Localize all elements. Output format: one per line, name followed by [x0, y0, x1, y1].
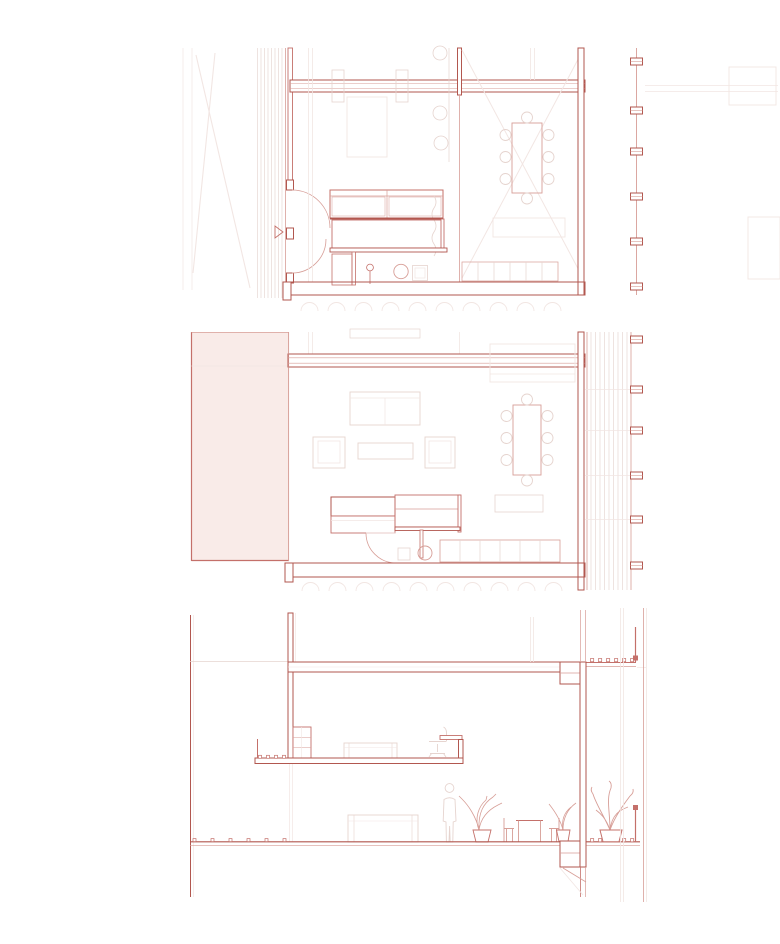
garden-paving-hatch	[88, 615, 176, 900]
site-boundary-line	[190, 615, 288, 897]
upper-furniture-faint	[332, 46, 449, 162]
panel-lower-floor-plan	[88, 329, 643, 591]
partition-wall	[458, 48, 462, 282]
joist-row	[296, 672, 583, 684]
void-pink-area	[192, 332, 290, 561]
staircase-main	[330, 219, 444, 253]
bottom-wall-strip	[283, 282, 585, 311]
garden-edge-strip	[183, 48, 192, 290]
exterior-wall-right	[578, 48, 584, 295]
bottom-wall-strip	[285, 563, 585, 591]
sofa-elevation	[344, 743, 397, 758]
sofa	[350, 392, 420, 425]
balcony-upper-right	[586, 627, 646, 668]
stair-small	[332, 254, 352, 285]
door-swing-arc	[366, 533, 396, 563]
garden-strip-bottom	[191, 561, 290, 576]
office-chair	[429, 727, 447, 757]
door-swing-arc	[292, 190, 330, 228]
staircase-main	[395, 495, 461, 532]
sofa-elevation	[348, 815, 418, 842]
facade-lines-right	[621, 608, 647, 902]
joist-row	[296, 764, 460, 772]
garden-edge-strip	[178, 332, 191, 590]
door-swing-arc	[292, 239, 326, 273]
coffee-table	[358, 443, 413, 459]
ramp-lines	[193, 53, 250, 288]
kitchen-counter	[440, 540, 560, 562]
grid-lines	[309, 332, 460, 354]
corrugated-edge	[302, 583, 562, 592]
bathroom-core	[330, 248, 447, 285]
tv-bench	[495, 495, 543, 512]
upper-room-furniture	[293, 727, 463, 759]
deck-board-band	[585, 332, 633, 590]
neighbor-unit-faint	[729, 67, 780, 279]
sideboard	[493, 218, 565, 237]
human-figure	[443, 784, 456, 842]
bistro-set	[504, 818, 559, 842]
exterior-wall-right	[578, 332, 584, 590]
louver-band	[258, 48, 286, 298]
ceiling-beam	[290, 80, 778, 92]
sofa	[330, 190, 443, 218]
garden-paving-hatch	[88, 332, 176, 578]
desk-guard	[440, 736, 463, 759]
balcony-plant	[591, 781, 633, 842]
mezzanine-slab	[255, 739, 463, 772]
roof-slab	[288, 662, 586, 684]
architectural-drawing-sheet	[0, 0, 780, 944]
balcony-lower-right	[591, 781, 639, 842]
panel-building-section	[88, 608, 647, 902]
basin	[394, 264, 408, 278]
facade-mullion-line	[631, 48, 643, 295]
wall-unit	[350, 329, 420, 338]
drawing-canvas	[0, 0, 780, 944]
wardrobe	[293, 727, 311, 759]
potted-plant	[459, 794, 502, 842]
panel-upper-floor-plan	[88, 46, 780, 311]
garden-paving-hatch	[88, 48, 176, 290]
dining-set	[501, 394, 553, 486]
basin	[398, 548, 410, 560]
kitchen-island	[331, 497, 395, 533]
kitchen-counter	[462, 262, 558, 281]
corrugated-edge	[301, 303, 561, 312]
ground-floor-slab	[190, 839, 640, 867]
lower-room-furniture	[348, 784, 576, 842]
ceiling-beam	[288, 354, 585, 367]
armchair	[313, 437, 345, 468]
potted-plant	[549, 803, 576, 842]
joist-row	[296, 850, 583, 866]
garden-edge-strip	[178, 615, 190, 899]
lamp-symbol	[367, 264, 374, 284]
facade-mullion-line	[631, 336, 643, 569]
armchair	[425, 437, 455, 468]
